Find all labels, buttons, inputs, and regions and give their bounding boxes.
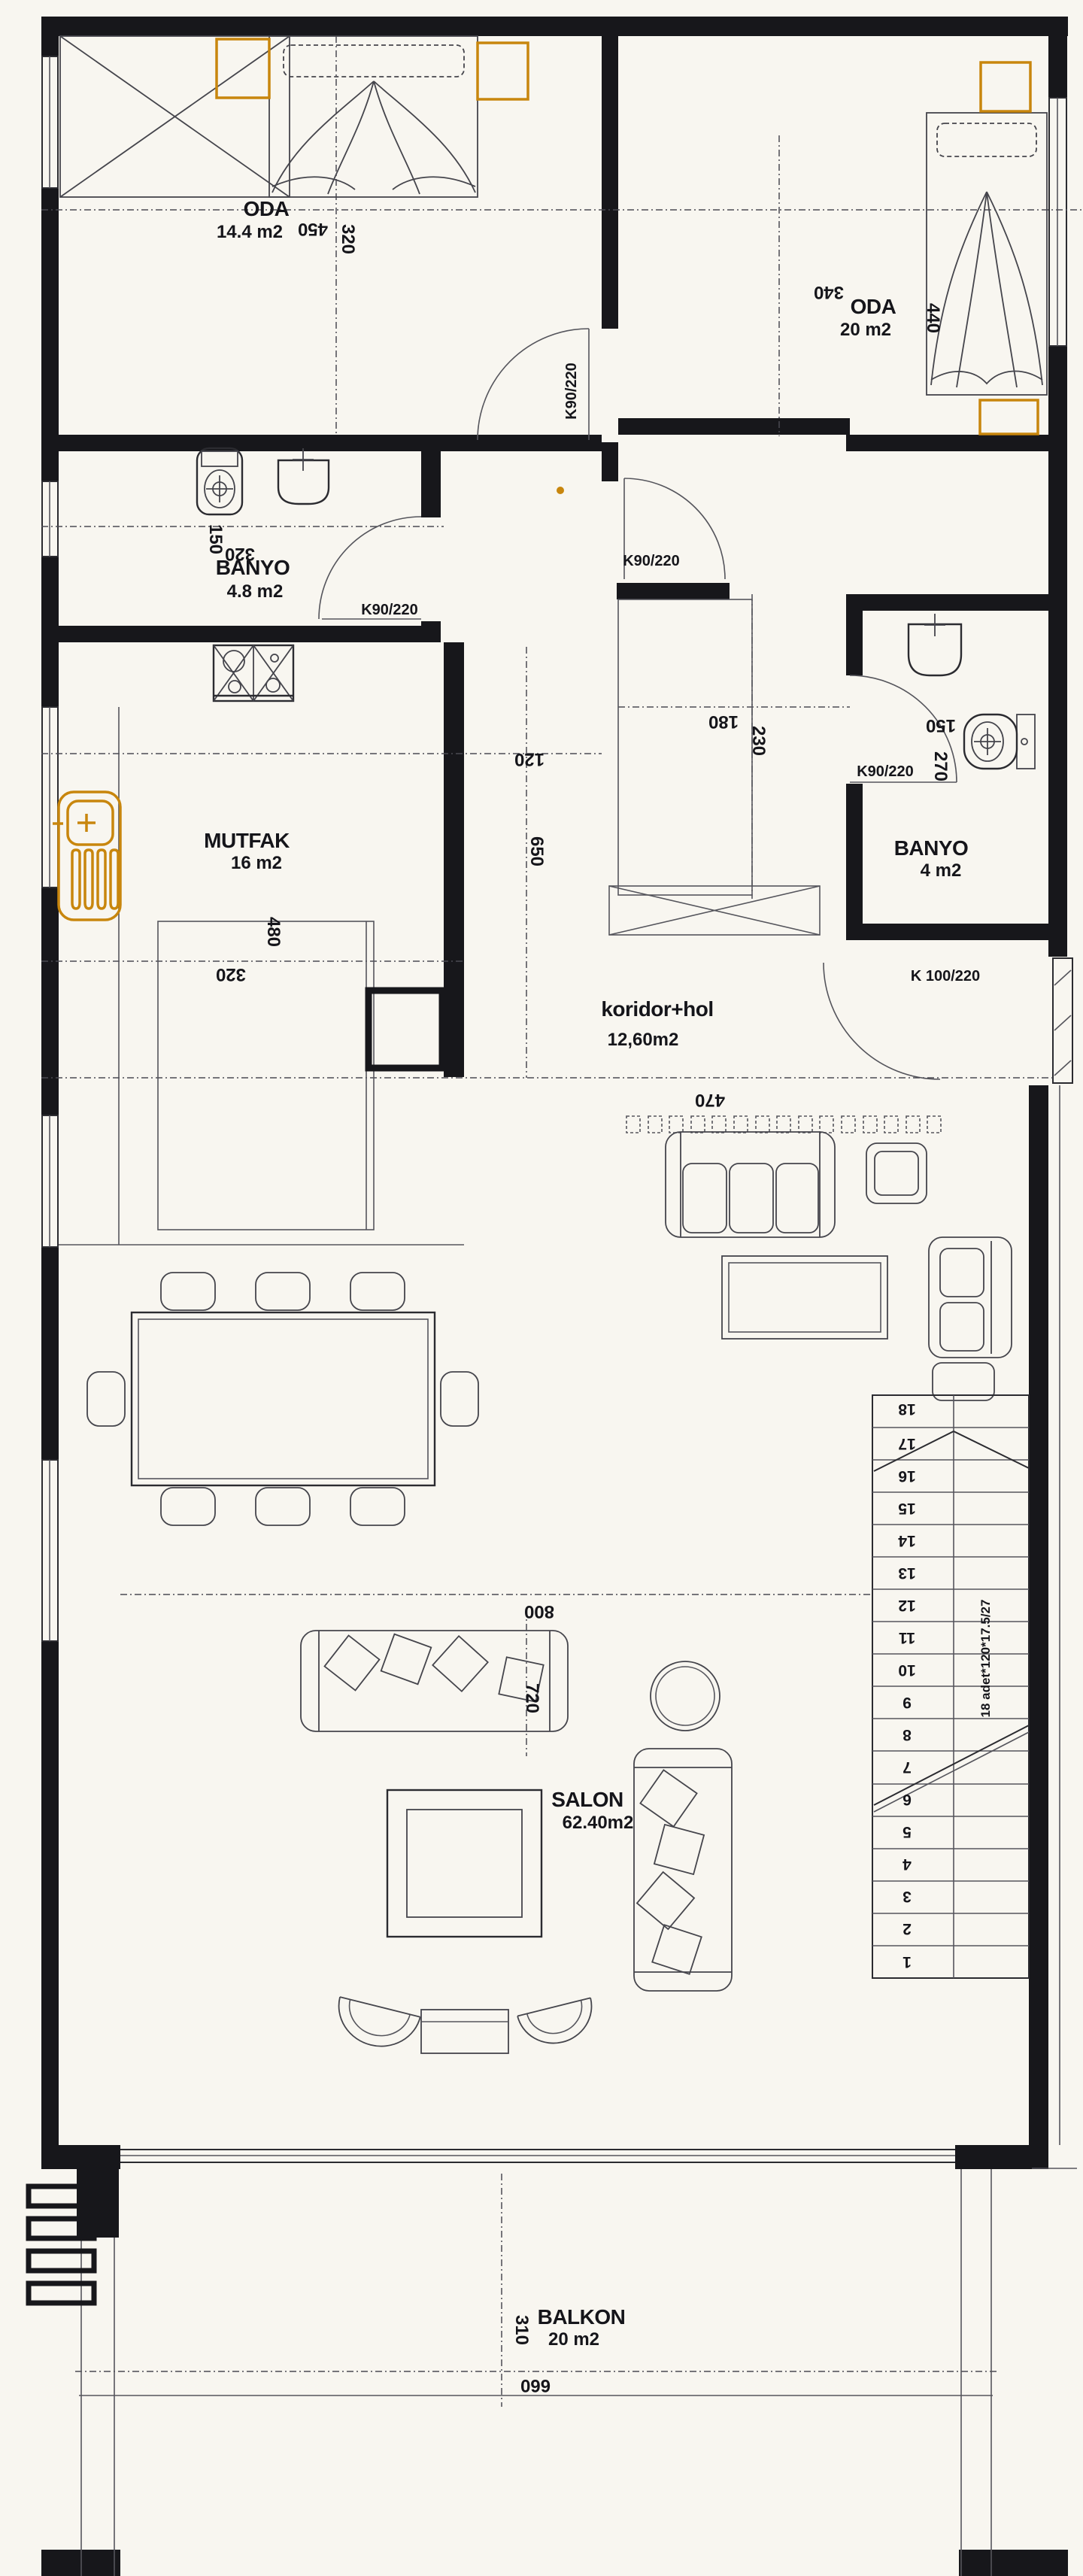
bed-icon-oda2	[927, 113, 1047, 395]
window-left-salon-2	[42, 1460, 58, 1641]
staircase	[872, 1395, 1029, 1978]
room-label-koridor: koridor+hol	[601, 997, 713, 1021]
stove-icon	[214, 645, 293, 701]
toilet-icon-banyo2	[964, 715, 1035, 769]
stair-number: 16	[898, 1467, 915, 1485]
fridge-icon	[369, 991, 442, 1068]
stair-number: 17	[898, 1435, 915, 1452]
stair-number: 4	[902, 1855, 912, 1873]
window-left-salon-1	[42, 1115, 58, 1247]
dim-440: 440	[923, 303, 943, 333]
dim-800: 800	[524, 1601, 554, 1622]
tv-table-icon	[387, 1790, 541, 1937]
room-area-oda1: 14.4 m2	[217, 222, 283, 242]
floor-plan: ODA 14.4 m2 450 320 K90/220 ODA 20 m2 34…	[0, 0, 1083, 2576]
toilet-icon-banyo1	[197, 448, 242, 514]
stair-number: 1	[902, 1953, 912, 1971]
stair-number: 15	[898, 1500, 916, 1517]
room-area-salon: 62.40m2	[563, 1813, 634, 1833]
room-area-banyo2: 4 m2	[921, 860, 962, 881]
room-area-banyo1: 4.8 m2	[227, 581, 284, 602]
dim-450: 450	[298, 219, 328, 239]
door-label-banyo2: K90/220	[857, 763, 914, 780]
window-left-mutfak	[42, 707, 58, 887]
stair-number: 11	[899, 1629, 916, 1646]
stair-number: 12	[898, 1597, 915, 1614]
stair-number: 9	[902, 1694, 912, 1711]
kitchen-sink-icon	[53, 792, 120, 920]
bed-icon-oda1	[269, 36, 478, 197]
planter-boxes	[29, 2186, 94, 2303]
window-left-oda1	[42, 56, 58, 188]
door-label-entry: K 100/220	[911, 968, 980, 985]
room-label-oda2: ODA	[851, 295, 896, 318]
loveseat-icon	[929, 1237, 1012, 1358]
dim-320-mutfak: 320	[216, 964, 246, 985]
dim-270: 270	[930, 751, 951, 781]
window-balcony-glass	[120, 2150, 955, 2162]
window-left-banyo1	[42, 481, 58, 557]
dim-230: 230	[748, 726, 769, 756]
room-label-salon: SALON	[551, 1788, 623, 1811]
pouf-icon	[651, 1661, 720, 1731]
room-area-balkon: 20 m2	[548, 2329, 599, 2350]
coffee-table-icon	[722, 1256, 887, 1339]
room-area-koridor: 12,60m2	[608, 1030, 679, 1050]
dim-320-banyo1: 320	[225, 544, 255, 564]
stair-number: 2	[902, 1920, 912, 1937]
door-label-oda1: K90/220	[563, 363, 580, 420]
closet-icon	[609, 886, 820, 935]
sofa-icon-c	[634, 1749, 732, 1991]
room-label-mutfak: MUTFAK	[204, 829, 290, 852]
dim-150-banyo1: 150	[205, 524, 226, 554]
armchair-icon	[517, 1998, 599, 2051]
side-table-icon	[866, 1143, 927, 1203]
dimension-lines	[41, 36, 1083, 2576]
dim-320-oda1: 320	[338, 224, 358, 254]
wardrobe-icon	[60, 36, 290, 197]
nightstand-icon	[980, 62, 1038, 434]
room-label-balkon: BALKON	[538, 2305, 626, 2329]
stair-number: 10	[898, 1661, 915, 1679]
dim-120: 120	[514, 749, 545, 769]
kitchen-island	[158, 921, 374, 1230]
door-label-banyo1: K90/220	[361, 602, 418, 618]
dining-table-icon	[87, 1273, 478, 1525]
sofa-icon-a	[666, 1132, 835, 1237]
room-area-oda2: 20 m2	[840, 320, 891, 340]
stair-number: 3	[902, 1888, 912, 1905]
labels: ODA 14.4 m2 450 320 K90/220 ODA 20 m2 34…	[204, 197, 993, 2395]
door-label-hall: K90/220	[623, 553, 680, 569]
dim-310: 310	[511, 2315, 532, 2345]
stair-number: 8	[902, 1726, 912, 1743]
stair-number: 13	[898, 1564, 915, 1582]
storage-room	[618, 599, 752, 895]
dim-150-banyo2: 150	[926, 715, 956, 736]
furniture	[29, 36, 1047, 2303]
dim-470: 470	[695, 1090, 725, 1110]
hall-dot	[557, 487, 564, 494]
dim-180: 180	[708, 712, 739, 732]
stair-note: 18 adet*120*17.5/27	[978, 1600, 993, 1718]
sink-icon-banyo1	[278, 448, 329, 504]
dim-340: 340	[814, 282, 844, 302]
windows	[42, 56, 1066, 2162]
room-label-banyo2: BANYO	[894, 836, 969, 860]
room-area-mutfak: 16 m2	[231, 853, 282, 873]
sink-icon-banyo2	[909, 614, 961, 675]
stair-number: 7	[902, 1758, 912, 1776]
dim-720: 720	[522, 1683, 542, 1713]
dim-660: 660	[520, 2375, 551, 2395]
room-label-oda1: ODA	[244, 197, 290, 220]
stair-number: 6	[902, 1791, 912, 1808]
exterior-walls	[41, 17, 1068, 2576]
dotted-divider	[626, 1116, 941, 1133]
small-table-icon	[421, 2010, 508, 2053]
sofa-icon-b	[301, 1631, 568, 1731]
window-right-oda2	[1049, 98, 1066, 346]
armchair-icon	[330, 1997, 420, 2055]
stair-number: 18	[898, 1400, 916, 1418]
stair-number: 5	[902, 1823, 912, 1840]
nightstand-icon	[217, 39, 528, 99]
stair-number: 14	[898, 1532, 916, 1549]
dim-480: 480	[263, 917, 284, 947]
dim-650: 650	[526, 836, 547, 866]
